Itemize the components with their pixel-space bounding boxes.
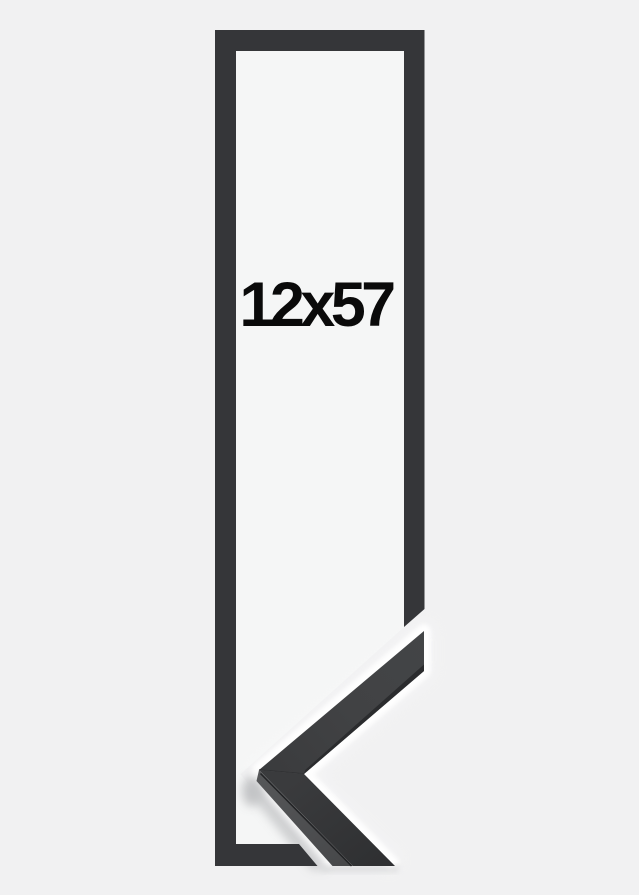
svg-text:12x57: 12x57: [239, 270, 394, 340]
